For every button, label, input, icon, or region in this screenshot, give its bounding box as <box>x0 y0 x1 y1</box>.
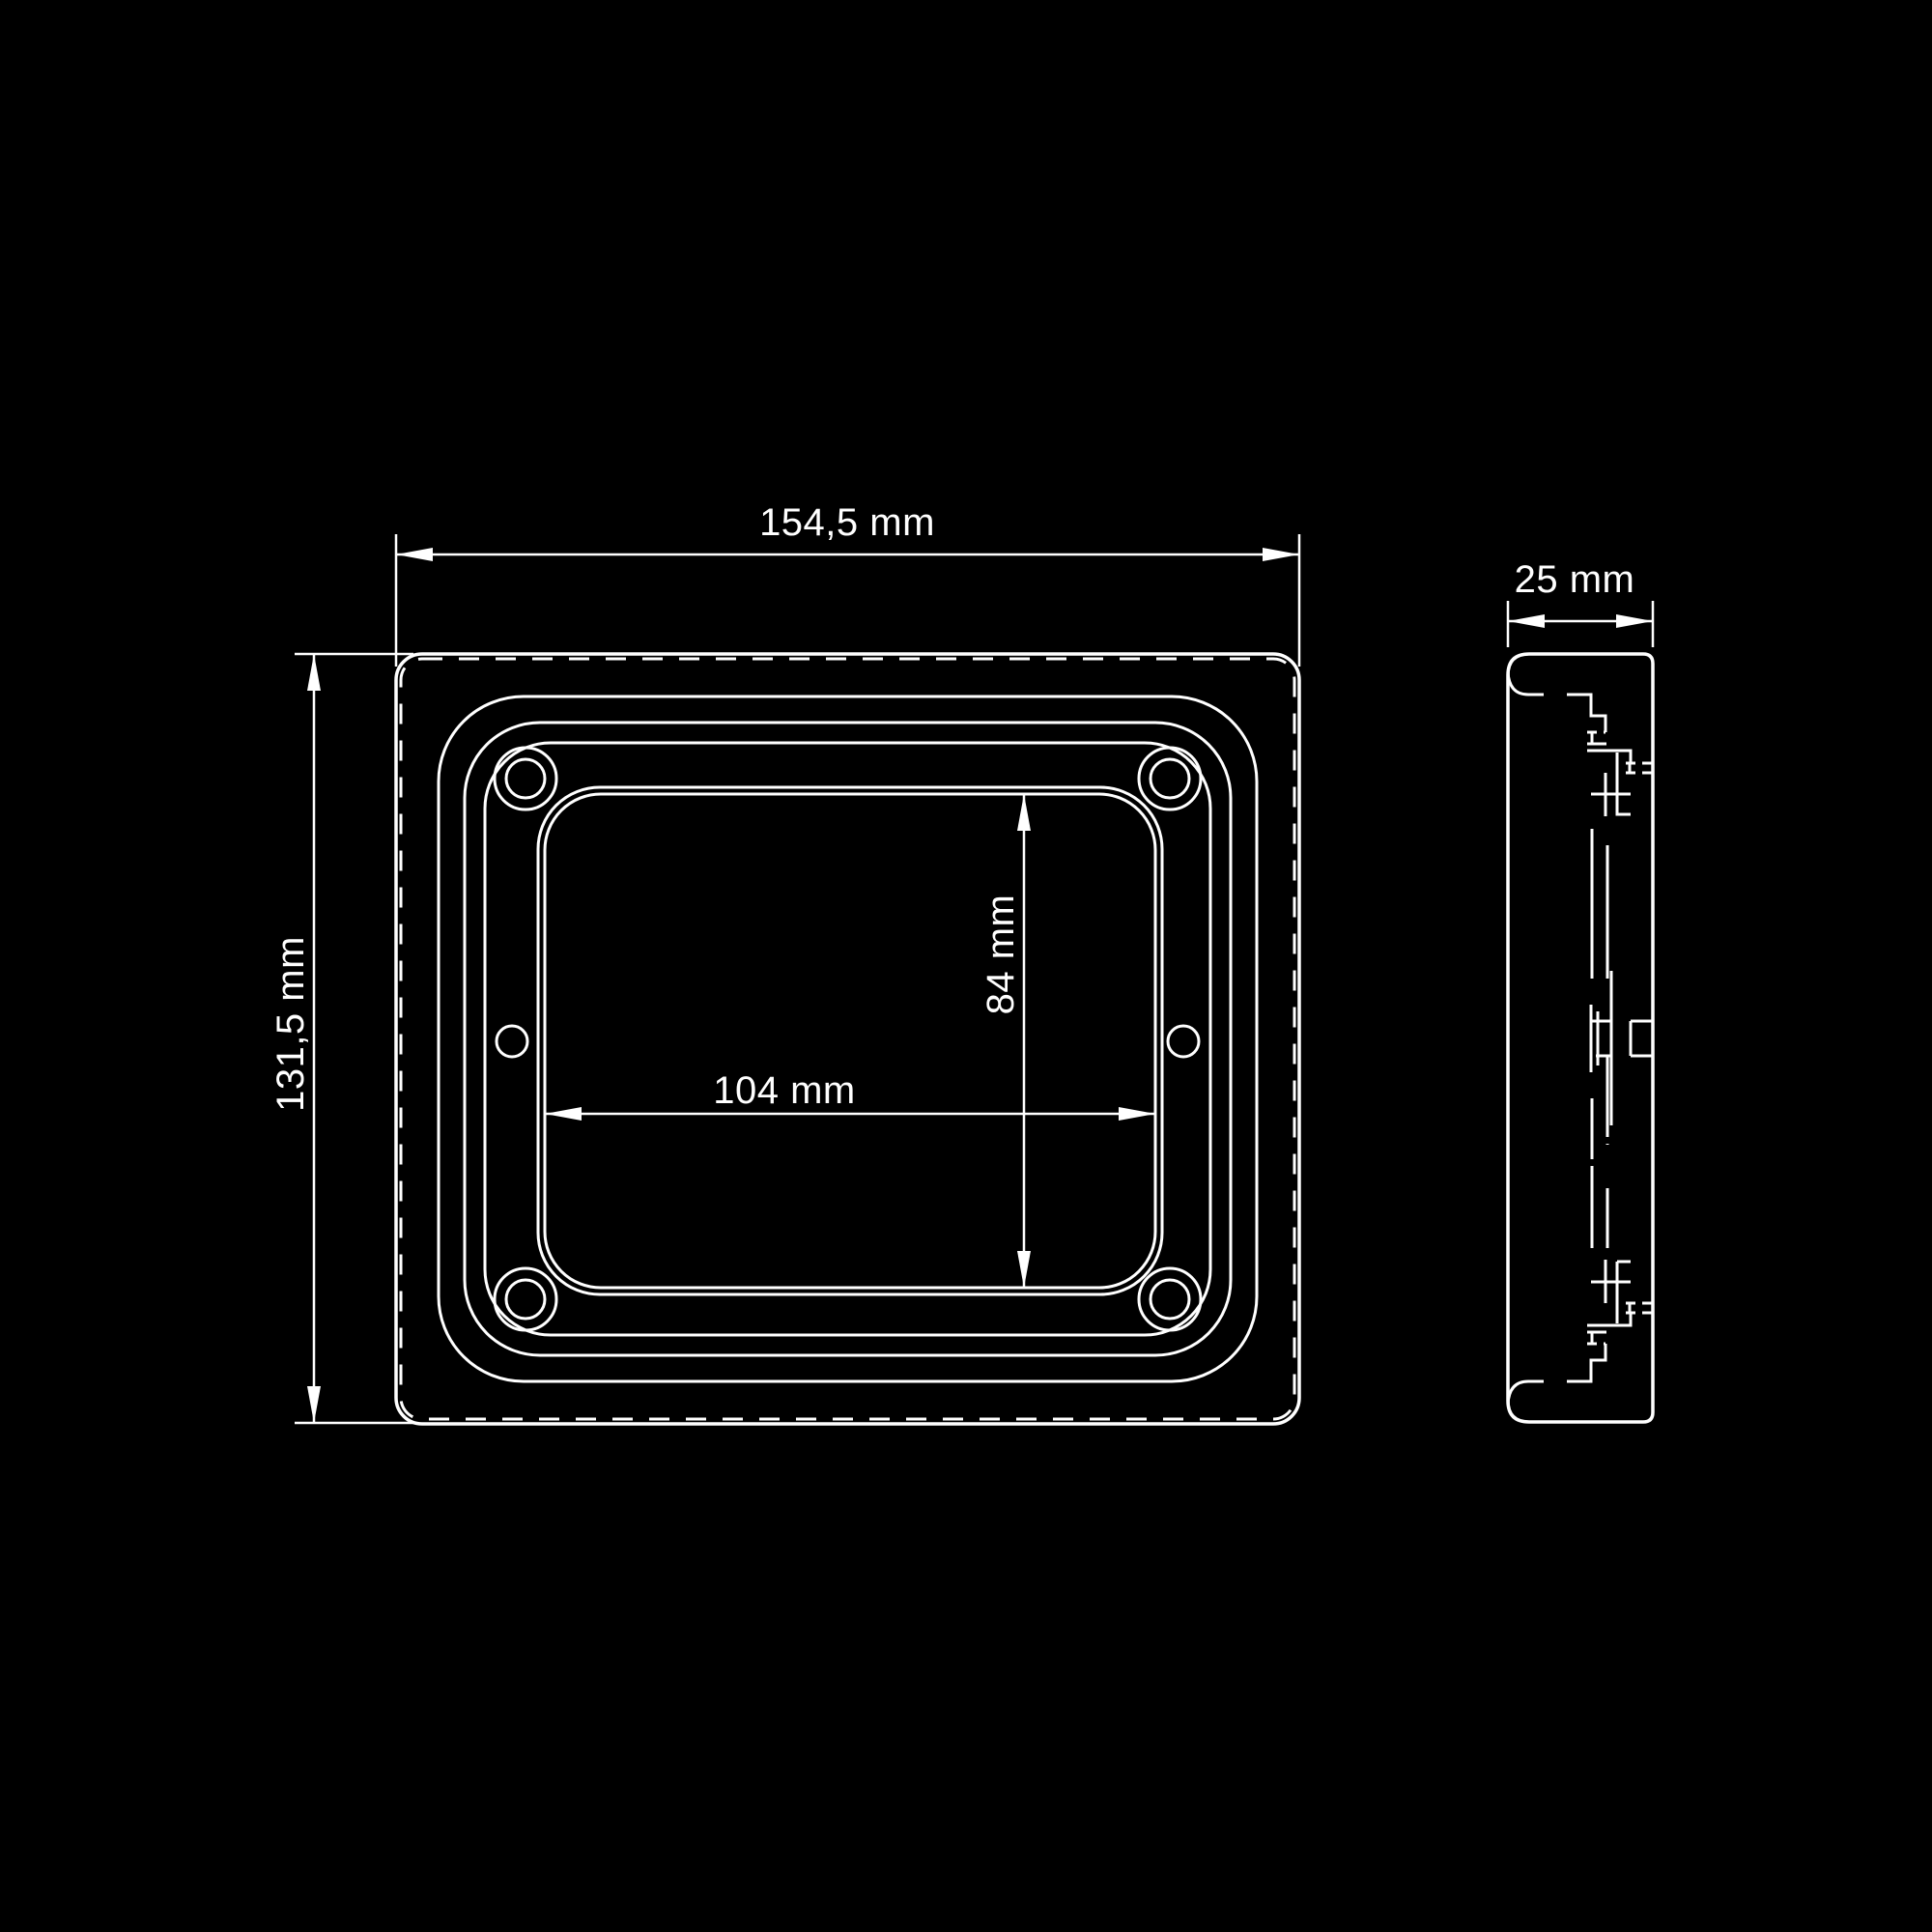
side-view <box>1508 654 1653 1422</box>
dimension-label-opening-height: 84 mm <box>980 895 1022 1015</box>
screw-hole-top-right <box>1151 759 1189 798</box>
front-outer-edge <box>396 654 1299 1424</box>
screw-boss-bottom-right <box>1139 1268 1201 1330</box>
arrowhead-right <box>1119 1107 1155 1121</box>
dimension-opening-height: 84 mm <box>980 794 1031 1288</box>
screw-hole-bottom-left <box>506 1280 545 1319</box>
mid-hole-left <box>497 1026 527 1057</box>
arrowhead-left <box>545 1107 582 1121</box>
arrowhead-left <box>1508 614 1545 628</box>
screw-hole-bottom-right <box>1151 1280 1189 1319</box>
side-clip-line <box>1587 751 1631 763</box>
front-view <box>396 654 1299 1424</box>
opening-outer-line <box>538 787 1162 1294</box>
technical-drawing-page: 154,5 mm 131,5 mm 104 mm 84 mm 25 mm <box>0 0 1932 1932</box>
side-flange-lip-bottom <box>1508 1381 1544 1405</box>
front-contour-inner <box>485 743 1210 1335</box>
arrowhead-top <box>307 654 321 691</box>
dimension-overall-width: 154,5 mm <box>396 501 1299 667</box>
screw-boss-top-right <box>1139 748 1201 810</box>
screw-boss-top-left <box>495 748 556 810</box>
screw-hole-top-left <box>506 759 545 798</box>
front-contour-middle <box>465 723 1231 1355</box>
arrowhead-right <box>1616 614 1653 628</box>
side-clip-line <box>1587 1313 1631 1325</box>
arrowhead-left <box>396 548 433 561</box>
arrowhead-bottom <box>1017 1251 1031 1288</box>
side-clip-bottom-step <box>1567 1344 1605 1381</box>
screw-boss-bottom-left <box>495 1268 556 1330</box>
dimension-label-overall-height: 131,5 mm <box>270 936 312 1112</box>
dimension-opening-width: 104 mm <box>545 1069 1155 1121</box>
technical-drawing: 154,5 mm 131,5 mm 104 mm 84 mm 25 mm <box>0 0 1932 1932</box>
dimension-label-depth: 25 mm <box>1515 558 1635 601</box>
front-hidden-edge <box>401 659 1294 1419</box>
side-clip-top-step <box>1567 695 1605 732</box>
dimension-overall-height: 131,5 mm <box>270 654 413 1423</box>
arrowhead-bottom <box>307 1386 321 1423</box>
arrowhead-right <box>1263 548 1299 561</box>
mid-hole-right <box>1168 1026 1199 1057</box>
opening-inner-line <box>545 794 1155 1288</box>
dimension-depth: 25 mm <box>1508 558 1653 647</box>
dimension-label-opening-width: 104 mm <box>713 1069 856 1112</box>
dimension-label-overall-width: 154,5 mm <box>759 501 935 544</box>
side-flange-lip-top <box>1508 671 1544 695</box>
arrowhead-top <box>1017 794 1031 831</box>
